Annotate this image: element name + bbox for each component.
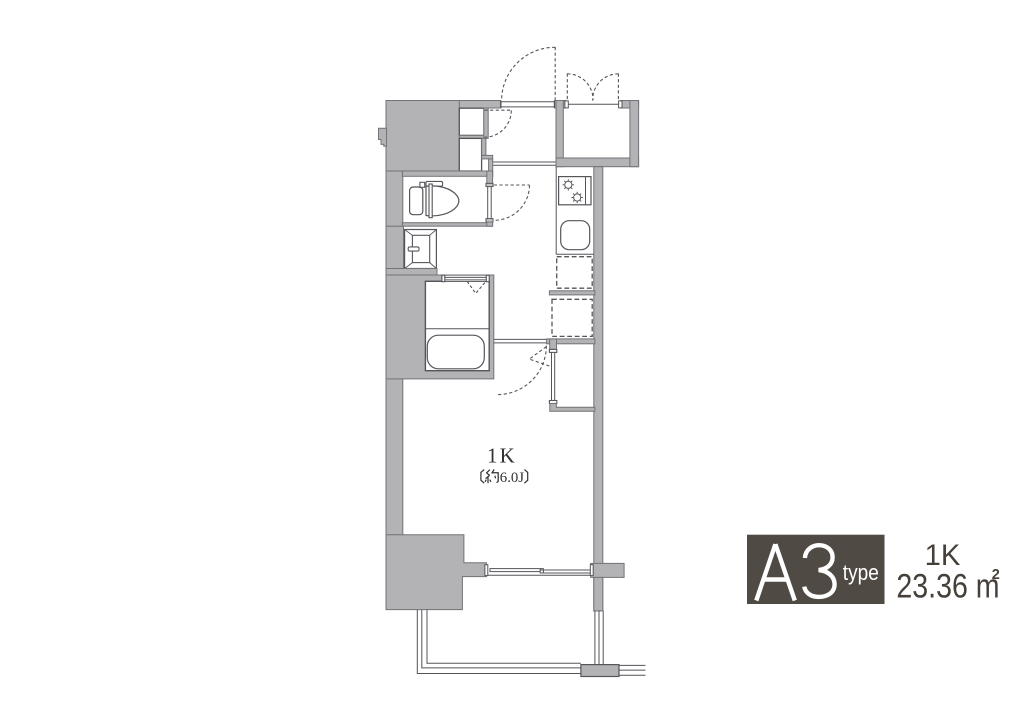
- svg-text:2: 2: [992, 567, 1000, 583]
- svg-text:1K: 1K: [487, 444, 517, 468]
- svg-text:type: type: [843, 560, 879, 585]
- svg-text:23.36 m: 23.36 m: [896, 568, 999, 606]
- svg-text:6.0J: 6.0J: [500, 470, 524, 486]
